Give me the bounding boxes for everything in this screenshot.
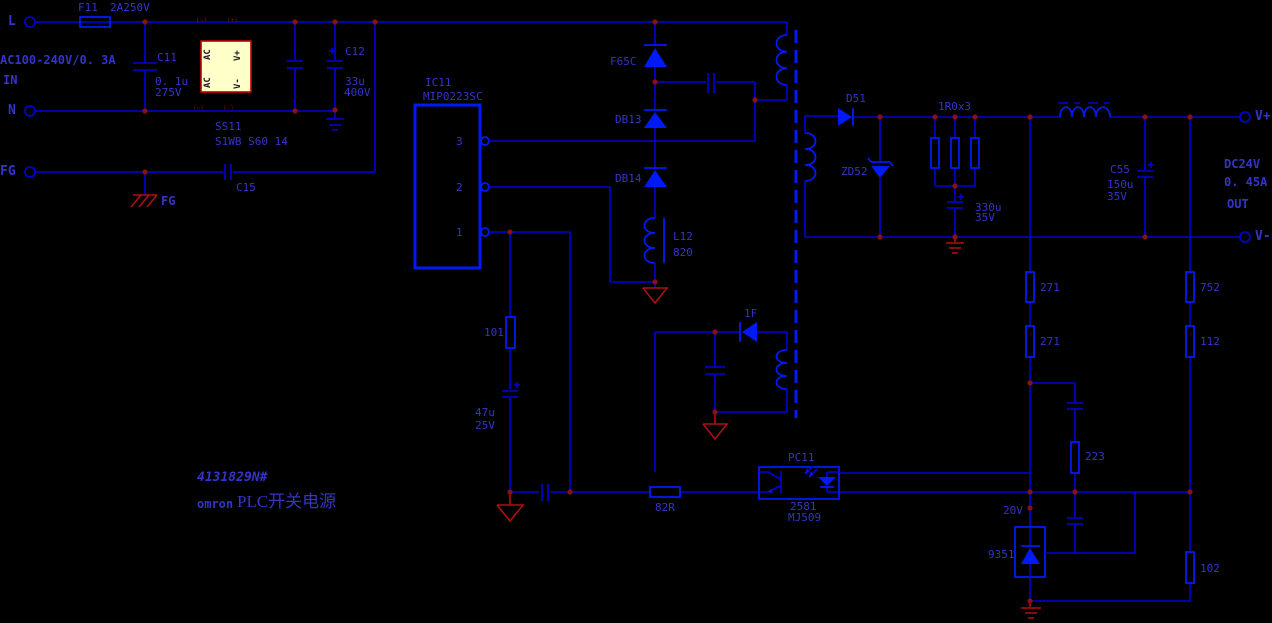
r82-symbol: [650, 487, 680, 497]
shunt-ref-label: 9351: [988, 549, 1015, 560]
vminus-terminal: [1240, 232, 1250, 242]
terminal-fg-label: FG: [0, 165, 16, 178]
input-rating-label: AC100-240V/0. 3A: [0, 54, 116, 66]
transformer: [777, 30, 839, 418]
vplus-label: V+: [1255, 110, 1271, 123]
c47-voltage-label: 25V: [475, 420, 495, 431]
c15-ref-label: C15: [236, 182, 256, 193]
c330-symbol: [947, 186, 964, 237]
v20-label: 20V: [1003, 505, 1023, 516]
f65c-diode: [644, 48, 667, 67]
bridge-ref-label: SS11: [215, 121, 242, 132]
ic11-ref-label: IC11: [425, 77, 452, 88]
doc-number-label: 4131829N#: [197, 471, 267, 484]
d1f-label: 1F: [744, 308, 757, 319]
pc11-part2-label: MJ509: [788, 512, 821, 523]
ic11-pin2-label: 2: [456, 182, 463, 193]
shunt-ground-icon: [1021, 601, 1041, 618]
secondary-winding: [805, 133, 816, 181]
l12-value-label: 820: [673, 247, 693, 258]
output-current-label: 0. 45A: [1224, 176, 1267, 188]
db14-diode: [644, 170, 667, 187]
bridge-pin-ac1-label: AC: [204, 49, 213, 60]
bridge-mark-1: (~): [196, 18, 207, 24]
aux-winding: [777, 350, 788, 389]
top-rail: [25, 17, 787, 35]
bottom-feedback-line: [497, 484, 759, 521]
c47-symbol: [502, 382, 520, 397]
fg-symbol-label: FG: [161, 195, 175, 207]
fg-line: [25, 164, 375, 207]
output-inductor: [1060, 107, 1110, 117]
l12-ground-icon: [643, 288, 667, 303]
c11-ref-label: C11: [157, 52, 177, 63]
divider-271: [1026, 117, 1083, 527]
shunt-9351: [1015, 492, 1190, 618]
terminal-n-label: N: [8, 104, 16, 117]
d1f-diode: [742, 322, 757, 342]
aux-ground-icon: [703, 412, 727, 439]
r112-symbol: [1186, 326, 1194, 357]
snubber: [643, 22, 787, 303]
c12-voltage-label: 400V: [344, 87, 371, 98]
vminus-label: V-: [1255, 230, 1271, 243]
zd52-label: ZD52: [841, 166, 868, 177]
l12-ref-label: L12: [673, 231, 693, 242]
f65c-label: F65C: [610, 56, 637, 67]
bridge-pin-vminus-label: V-: [234, 78, 243, 89]
r223-symbol: [1071, 442, 1079, 473]
ic11-box: [415, 105, 489, 268]
zd52-zener: [871, 166, 890, 178]
zd52-branch: [868, 117, 893, 237]
r82-label: 82R: [655, 502, 675, 513]
schematic-canvas: [0, 0, 1272, 623]
r1r0x3-label: 1R0x3: [938, 101, 971, 112]
r101-c47-chain: [502, 232, 520, 492]
r271-lower-label: 271: [1040, 336, 1060, 347]
bridge-mark-3: (~): [193, 106, 204, 112]
r271-upper-label: 271: [1040, 282, 1060, 293]
pin2-net: [489, 187, 655, 282]
c12-ref-label: C12: [345, 46, 365, 57]
bridge-pin-vplus-label: V+: [234, 50, 243, 61]
aux-rectifier: [655, 322, 787, 472]
r223-label: 223: [1085, 451, 1105, 462]
db13-label: DB13: [615, 114, 642, 125]
opto-led: [818, 477, 836, 486]
clamp-cap-net: [655, 73, 787, 141]
bridge-part-label: S1WB S60 14: [215, 136, 288, 147]
d51-label: D51: [846, 93, 866, 104]
junction-dots: [142, 19, 1192, 603]
ref-cap-symbol: [1067, 492, 1083, 553]
schematic-page: F11 2A250V L N FG AC100-240V/0. 3A IN C1…: [0, 0, 1272, 623]
phototransistor: [759, 471, 781, 493]
bridge-pin-ac2-label: AC: [204, 77, 213, 88]
brand-label: omron: [197, 498, 233, 510]
bridge-mark-4: (-): [223, 106, 234, 112]
r101-symbol: [506, 317, 515, 348]
output-voltage-label: DC24V: [1224, 158, 1260, 170]
bulk-cap-symbols: [287, 22, 344, 130]
shunt-zener: [1021, 548, 1040, 564]
terminal-l-label: L: [8, 15, 16, 28]
earth-ground-icon: [326, 110, 344, 130]
fuse-value-label: 2A250V: [110, 2, 150, 13]
fuse-ref-label: F11: [78, 2, 98, 13]
bridge-mark-2: (+): [227, 18, 238, 24]
c55-branch: [1137, 117, 1154, 237]
primary-winding: [777, 35, 788, 85]
c11-voltage-label: 275V: [155, 87, 182, 98]
input-direction-label: IN: [3, 74, 17, 86]
signal-ground-icon: [497, 492, 523, 521]
fg-ground-icon: [131, 195, 157, 207]
r271-lower-symbol: [1026, 326, 1034, 357]
r271-upper-symbol: [1026, 272, 1034, 302]
r752-label: 752: [1200, 282, 1220, 293]
r102-label: 102: [1200, 563, 1220, 574]
db14-label: DB14: [615, 173, 642, 184]
d51-diode: [838, 108, 852, 126]
vplus-terminal: [1240, 112, 1250, 122]
c47-value-label: 47u: [475, 407, 495, 418]
ic11-part-label: MIP0223SC: [423, 91, 483, 102]
r112-label: 112: [1200, 336, 1220, 347]
output-direction-label: OUT: [1227, 198, 1249, 210]
pc11-ref-label: PC11: [788, 452, 815, 463]
ic11-pin1-label: 1: [456, 227, 463, 238]
n-rail: [25, 106, 335, 116]
c55-value-label: 150u: [1107, 179, 1134, 190]
l12-coil: [645, 218, 656, 263]
ic11-pin3-label: 3: [456, 136, 463, 147]
r101-label: 101: [484, 327, 504, 338]
c55-ref-label: C55: [1110, 164, 1130, 175]
shunt-ref-net: [1045, 492, 1135, 553]
r102-symbol: [1186, 552, 1194, 583]
db13-diode: [644, 112, 667, 128]
divider-752: [1186, 117, 1194, 601]
c330-voltage-label: 35V: [975, 212, 995, 223]
r752-symbol: [1186, 272, 1194, 302]
product-title-label: PLC开关电源: [237, 493, 336, 510]
pc11-optocoupler: [759, 466, 839, 499]
c11-symbol: [133, 22, 157, 111]
output-rail: [805, 103, 1250, 242]
c55-voltage-label: 35V: [1107, 191, 1127, 202]
